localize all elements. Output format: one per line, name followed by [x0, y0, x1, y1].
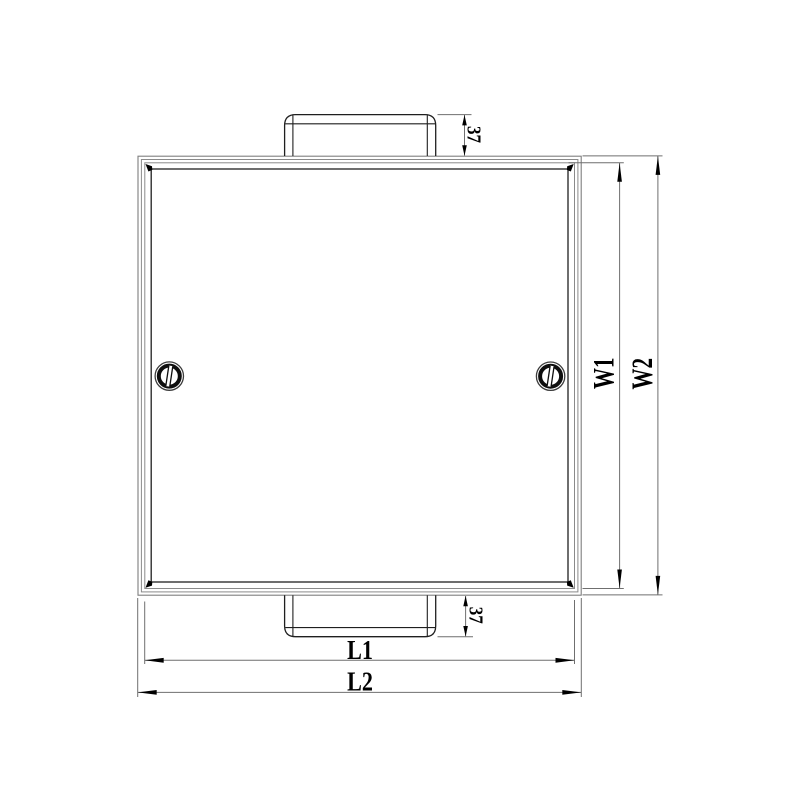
svg-text:L1: L1	[347, 636, 373, 666]
svg-text:W2: W2	[625, 358, 659, 389]
svg-text:W1: W1	[587, 358, 621, 389]
svg-text:L2: L2	[347, 668, 373, 698]
svg-text:37: 37	[462, 126, 485, 143]
svg-text:37: 37	[464, 607, 487, 624]
